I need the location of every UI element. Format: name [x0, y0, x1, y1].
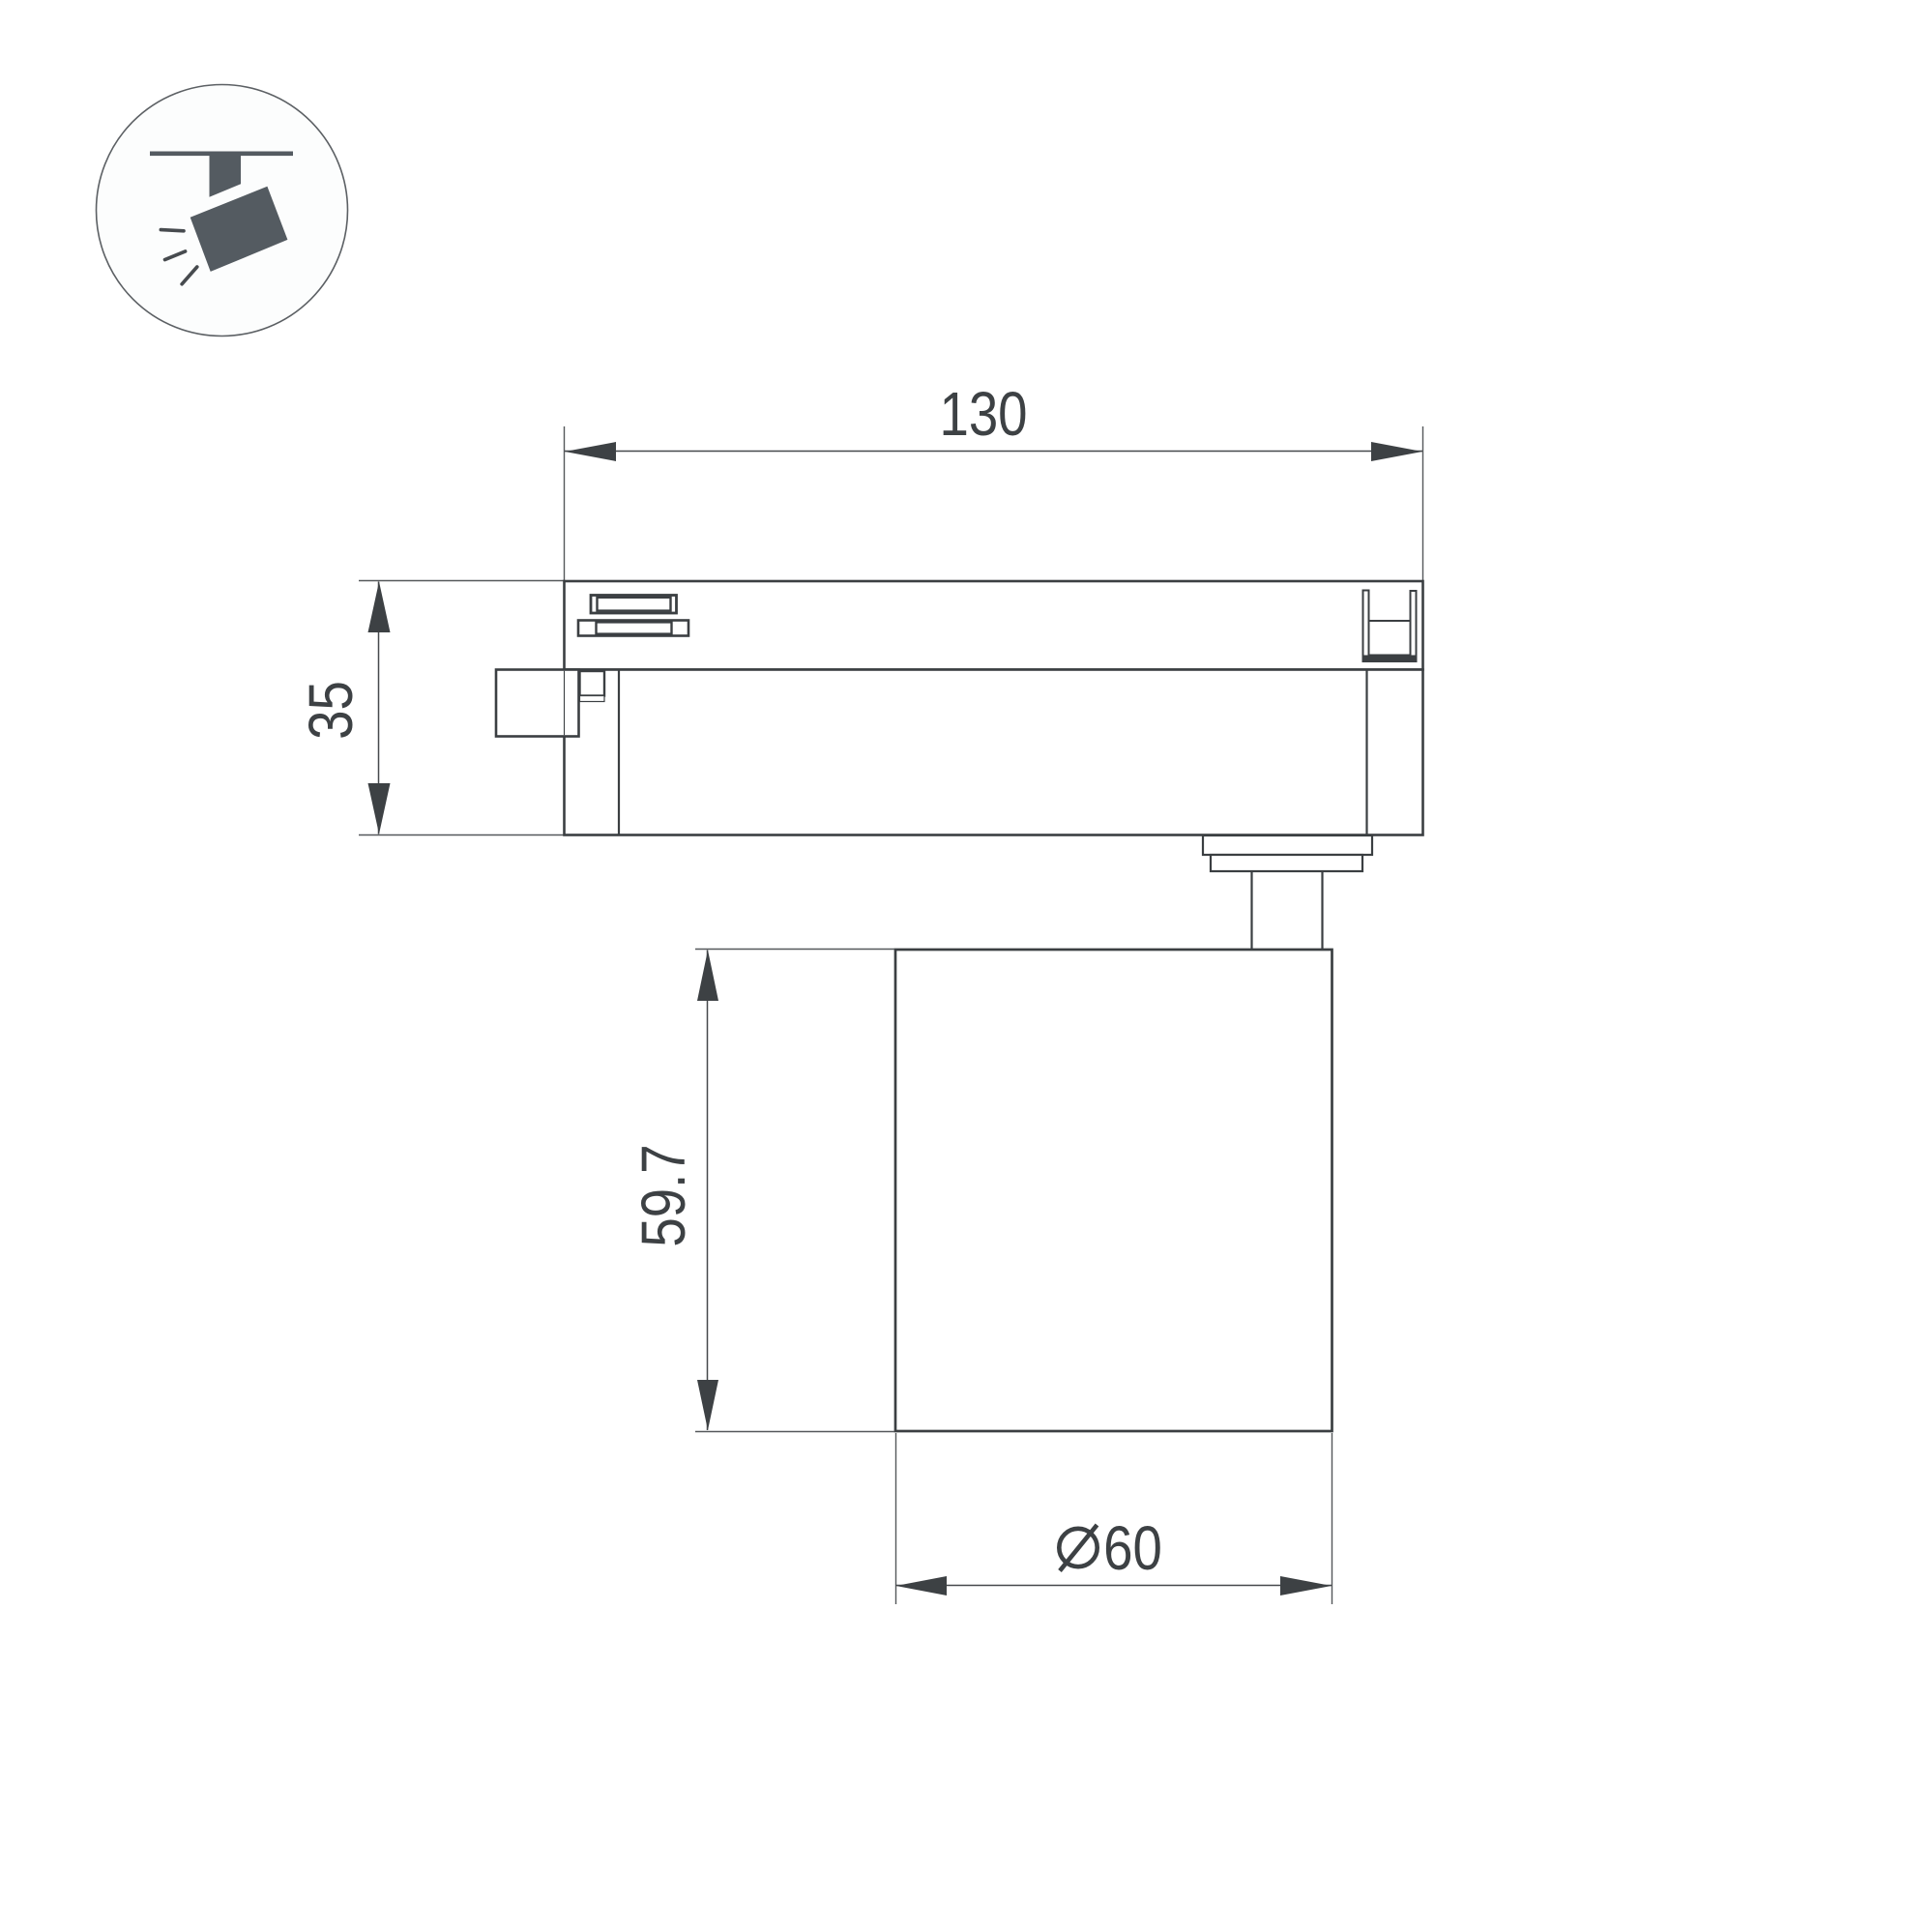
- svg-text:130: 130: [939, 379, 1027, 449]
- svg-text:60: 60: [1103, 1513, 1162, 1583]
- svg-text:59.7: 59.7: [629, 1144, 698, 1246]
- svg-text:35: 35: [296, 681, 366, 740]
